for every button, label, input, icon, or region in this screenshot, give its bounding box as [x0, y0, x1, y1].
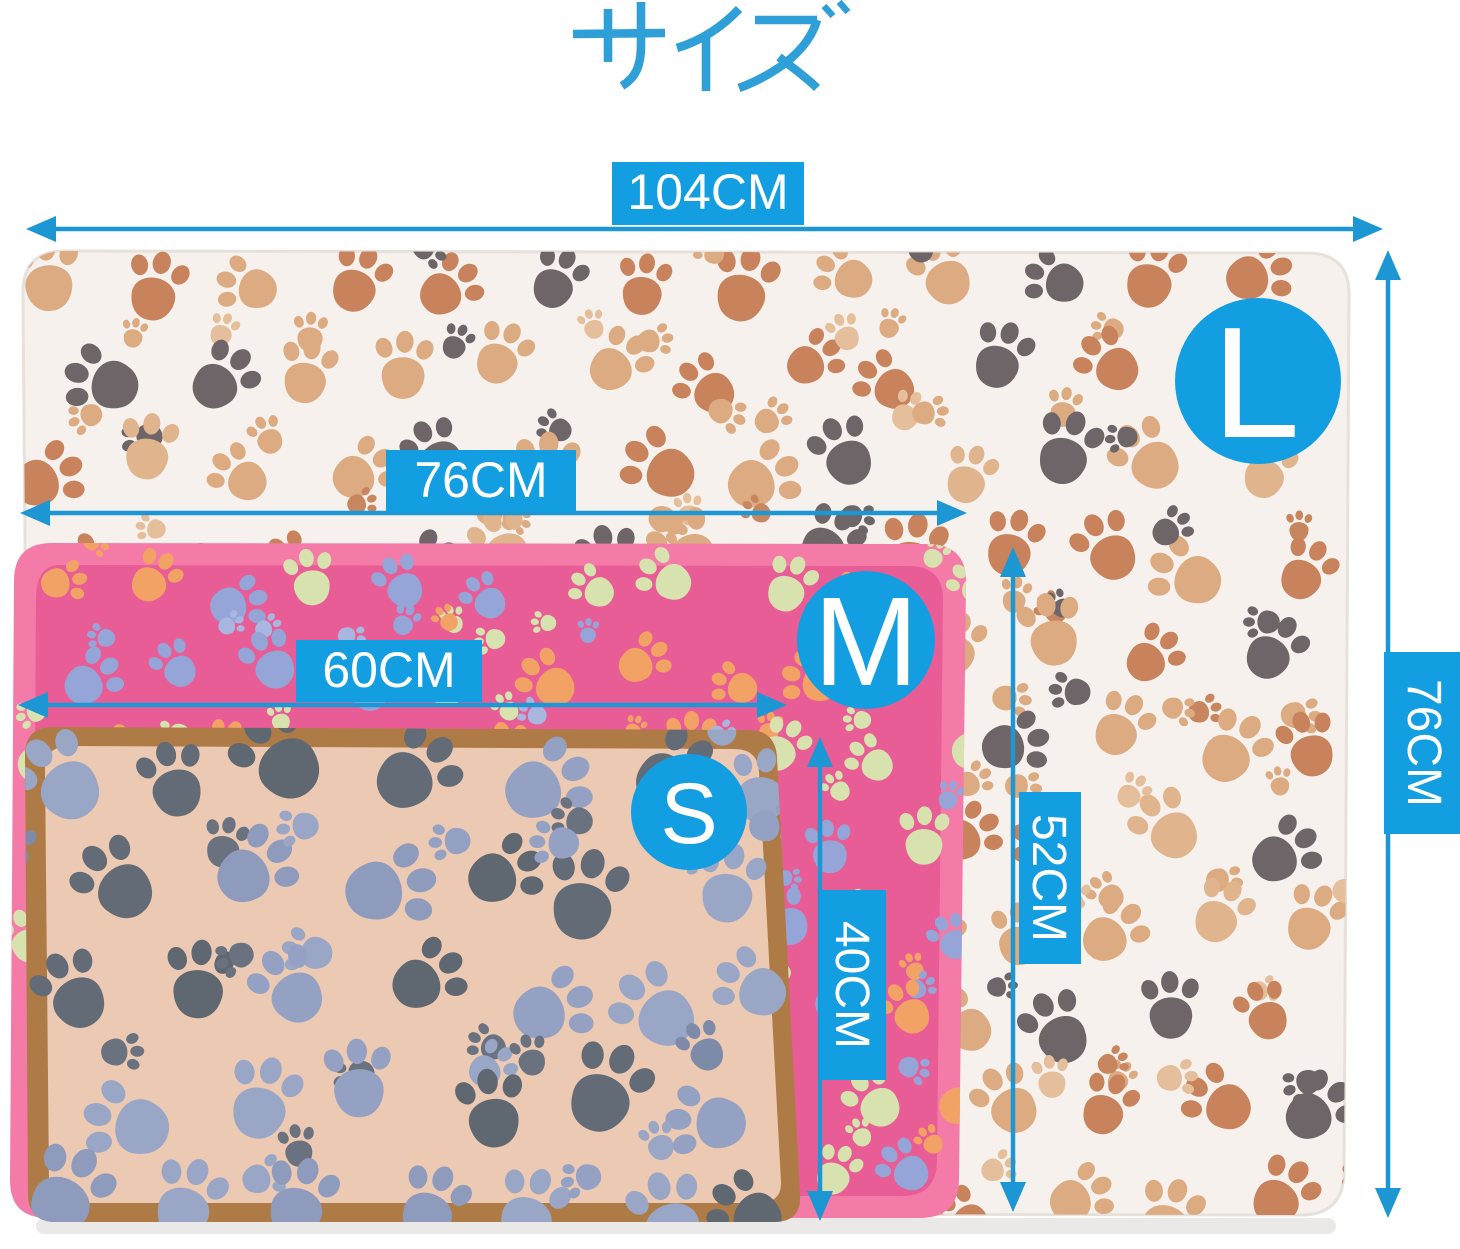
svg-text:M: M	[814, 571, 919, 712]
svg-text:104CM: 104CM	[627, 164, 788, 220]
svg-text:76CM: 76CM	[414, 452, 547, 508]
svg-text:60CM: 60CM	[322, 642, 455, 698]
svg-text:76CM: 76CM	[1397, 679, 1450, 807]
svg-text:L: L	[1212, 295, 1300, 471]
svg-text:52CM: 52CM	[1022, 814, 1075, 942]
svg-text:S: S	[660, 766, 717, 862]
svg-text:40CM: 40CM	[825, 921, 878, 1049]
